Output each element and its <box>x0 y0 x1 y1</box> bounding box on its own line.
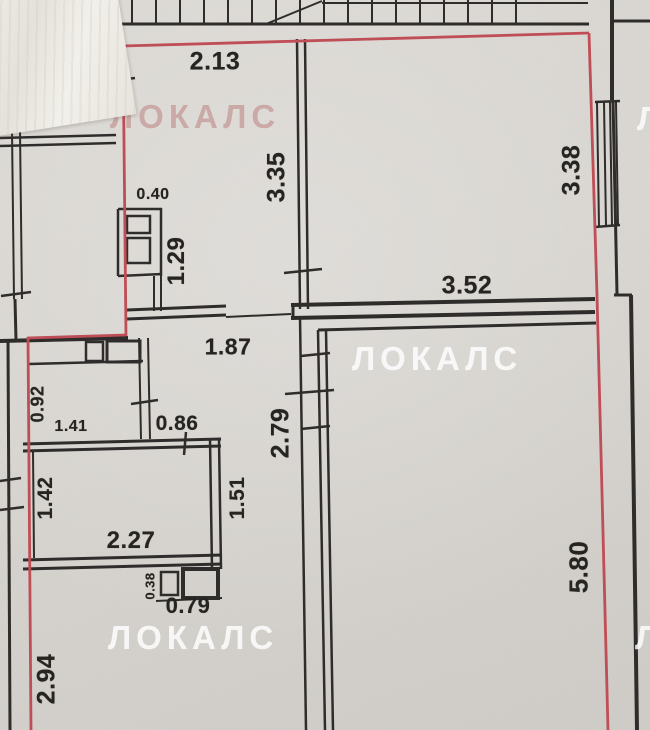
dim-label-corridor-lower-depth: 1.51 <box>226 477 250 520</box>
dim-label-niche-width: 0.86 <box>156 412 199 436</box>
dim-label-vent-shaft-depth: 1.29 <box>163 237 191 286</box>
dim-label-duct-width: 0.79 <box>166 593 211 619</box>
dim-label-corridor-depth: 2.79 <box>267 408 296 459</box>
dim-label-living-room-depth: 5.80 <box>564 541 595 594</box>
dim-label-top-left-room-width: 2.13 <box>190 48 241 77</box>
watermark-lokals-bottom: ЛОКАЛС <box>108 619 278 657</box>
dim-label-duct-depth: 0.38 <box>143 572 158 599</box>
watermark-lokals-top-partial: Л <box>637 100 650 138</box>
dim-label-living-room-width: 3.52 <box>442 272 493 301</box>
main-cross-wall <box>127 299 595 319</box>
dim-label-hall-depth: 2.94 <box>33 654 62 705</box>
floorplan-photo: 2.13 3.35 3.38 0.40 1.29 3.52 1.87 0.92 … <box>0 0 650 730</box>
dim-label-vent-shaft-width: 0.40 <box>136 186 169 204</box>
dim-label-top-right-room-depth: 3.38 <box>558 145 587 196</box>
watermark-lokals-top: ЛОКАЛС <box>110 98 280 136</box>
dim-label-hall-top-width: 1.87 <box>205 334 252 361</box>
dim-label-wc-depth: 0.92 <box>28 385 49 422</box>
dim-label-bathroom-depth: 1.42 <box>34 477 58 520</box>
staircase-hatch <box>58 0 589 24</box>
dim-label-bathroom-width: 2.27 <box>107 527 156 555</box>
watermark-lokals-middle: ЛОКАЛС <box>352 340 522 378</box>
dim-label-top-left-room-depth: 3.35 <box>263 152 292 203</box>
dim-label-wc-width: 1.41 <box>54 418 87 436</box>
watermark-lokals-bottom-partial: Л <box>635 619 650 657</box>
paper-sticker <box>0 0 137 136</box>
corridor-living-walls <box>285 317 596 730</box>
